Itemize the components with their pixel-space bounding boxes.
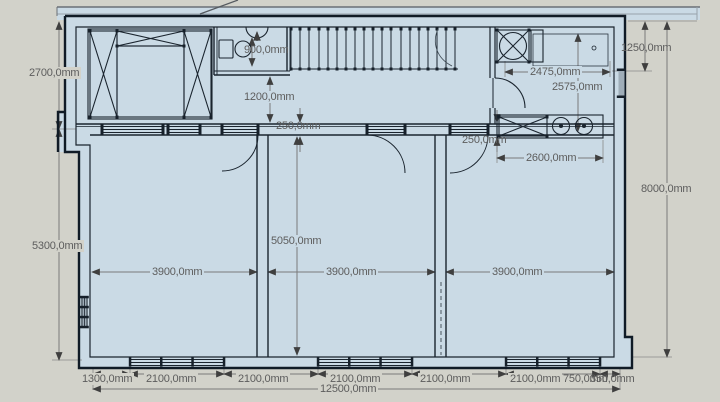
floor-plan-viewport: 2700,0mm 5300,0mm 900,0mm 1200,0mm 250,0… [0,0,720,402]
paper-background [57,7,700,368]
left-window [80,296,89,329]
floor-plan-canvas [0,0,720,402]
